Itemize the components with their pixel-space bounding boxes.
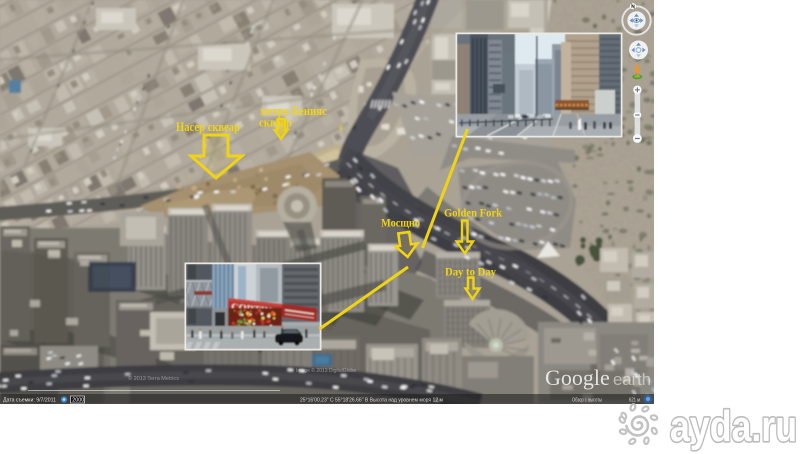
svg-text:Golden Fork: Golden Fork <box>444 206 502 220</box>
svg-text:2000: 2000 <box>72 398 84 404</box>
svg-text:earth: earth <box>613 370 651 389</box>
svg-text:© 2013 Terra Metrics: © 2013 Terra Metrics <box>128 375 179 382</box>
svg-text:Дата съемки: 9/7/2011: Дата съемки: 9/7/2011 <box>3 398 56 404</box>
svg-text:Обзор с высоты: Обзор с высоты <box>572 398 602 404</box>
svg-text:ayda.ru: ayda.ru <box>670 402 797 451</box>
svg-text:Image © 2013 DigitalGlobe: Image © 2013 DigitalGlobe <box>296 367 356 374</box>
svg-text:сквеар: сквеар <box>259 116 292 130</box>
svg-text:621 м: 621 м <box>629 398 640 404</box>
svg-text:Мосщно: Мосщно <box>381 216 420 230</box>
svg-text:25°16'00.23" C 55°18'26.66" B: 25°16'00.23" C 55°18'26.66" B Высота над… <box>300 398 443 404</box>
svg-text:Google: Google <box>545 365 610 390</box>
svg-text:Насер сквеар: Насер сквеар <box>176 120 240 134</box>
